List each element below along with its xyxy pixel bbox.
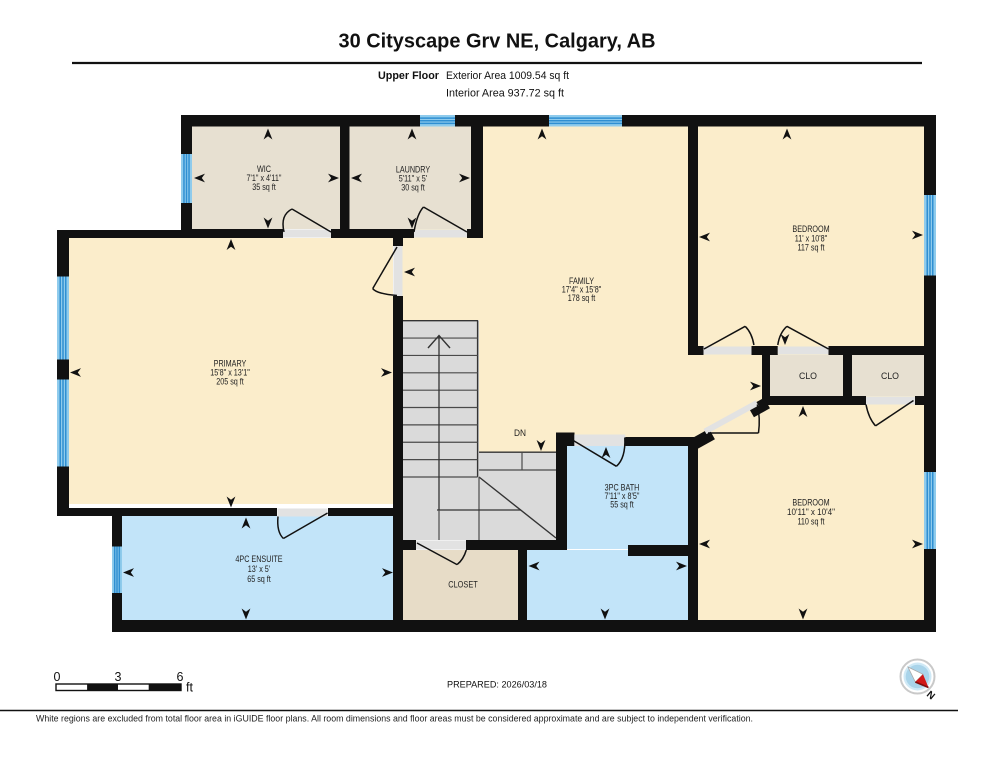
svg-text:PREPARED: 2026/03/18: PREPARED: 2026/03/18 [447, 680, 547, 691]
svg-text:6: 6 [177, 670, 184, 684]
svg-text:4PC ENSUITE: 4PC ENSUITE [235, 554, 282, 564]
svg-text:55 sq ft: 55 sq ft [610, 500, 634, 510]
svg-text:110 sq ft: 110 sq ft [797, 517, 824, 527]
svg-text:CLO: CLO [799, 371, 817, 381]
svg-text:205 sq ft: 205 sq ft [216, 377, 244, 387]
svg-text:CLO: CLO [881, 371, 899, 381]
svg-text:35 sq ft: 35 sq ft [252, 182, 276, 192]
svg-text:DN: DN [514, 428, 526, 438]
svg-text:10'11" x 10'4": 10'11" x 10'4" [787, 507, 835, 517]
svg-text:White regions are excluded fro: White regions are excluded from total fl… [36, 714, 753, 724]
svg-text:30 sq ft: 30 sq ft [401, 183, 425, 193]
svg-text:BEDROOM: BEDROOM [792, 498, 829, 508]
svg-text:30 Cityscape Grv NE, Calgary,: 30 Cityscape Grv NE, Calgary, AB [339, 31, 656, 53]
svg-text:13' x 5': 13' x 5' [248, 564, 271, 574]
svg-text:178 sq ft: 178 sq ft [568, 293, 596, 303]
svg-text:ft: ft [186, 681, 193, 695]
svg-text:3: 3 [115, 670, 122, 684]
svg-text:BEDROOM: BEDROOM [792, 224, 829, 234]
svg-text:117 sq ft: 117 sq ft [797, 243, 824, 253]
svg-text:CLOSET: CLOSET [448, 580, 478, 591]
svg-text:Upper Floor: Upper Floor [378, 70, 440, 82]
svg-text:Exterior Area 1009.54 sq ft: Exterior Area 1009.54 sq ft [446, 70, 569, 82]
svg-text:Interior Area 937.72 sq ft: Interior Area 937.72 sq ft [446, 88, 564, 100]
svg-text:0: 0 [54, 670, 61, 684]
svg-text:65 sq ft: 65 sq ft [247, 574, 271, 584]
